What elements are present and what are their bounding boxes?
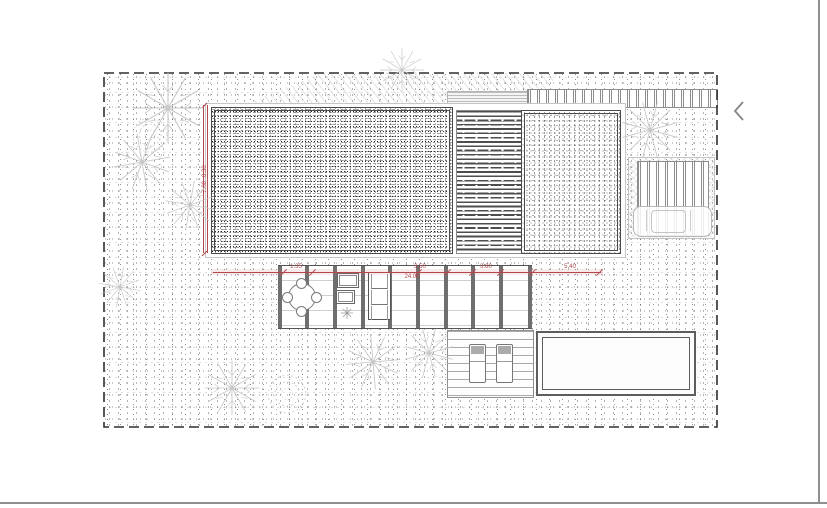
dimension-line-horizontal [213, 272, 601, 273]
dimension-label: 5.40 [564, 264, 576, 270]
chevron-left-icon [731, 100, 747, 122]
carousel-prev-button[interactable] [731, 100, 747, 122]
property-boundary [103, 72, 718, 428]
dimension-label-vertical: 7.00 8.30 [202, 157, 208, 201]
dimension-label: 3.80 [480, 264, 492, 270]
viewer-canvas: 1.35 3.50 3.80 5.40 24.06 7.00 8.30 [0, 0, 827, 508]
site-plan: 1.35 3.50 3.80 5.40 24.06 7.00 8.30 [103, 72, 718, 428]
dimension-label-total: 24.06 [404, 274, 419, 280]
window-edge-right [818, 0, 820, 504]
dimension-label: 7.00 [202, 181, 208, 193]
window-edge-bottom [0, 502, 827, 504]
dimension-label: 1.35 [290, 264, 302, 270]
dimension-label: 8.30 [202, 165, 208, 177]
dimension-label: 3.50 [414, 264, 426, 270]
